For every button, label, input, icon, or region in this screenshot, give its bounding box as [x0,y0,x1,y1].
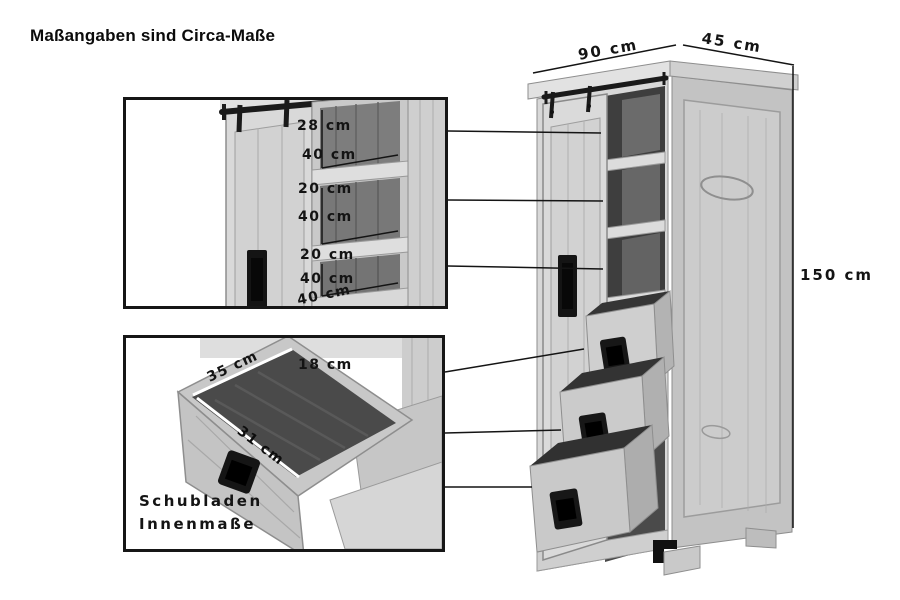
height-dimension-label: 150 cm [800,268,873,283]
cabinet-illustration [528,61,798,575]
shelf-2-depth-label: 40 cm [298,210,353,224]
shelf-1-height-label: 28 cm [297,119,352,133]
drawer-caption-line2: Innenmaße [139,517,256,532]
dimension-diagram: Maßangaben sind Circa-Maße 90 cm 45 cm 1… [0,0,900,600]
shelf-compartments [605,86,665,318]
drawer-3-handle [549,488,583,530]
page-title: Maßangaben sind Circa-Maße [30,26,275,46]
drawer-height-label: 18 cm [298,358,353,372]
shelf-1-depth-label: 40 cm [302,148,357,162]
shelf-3-height-label: 20 cm [300,248,355,262]
shelf-2-height-label: 20 cm [298,182,353,196]
diagram-artwork [0,0,900,600]
drawer-caption-line1: Schubladen [139,494,263,509]
